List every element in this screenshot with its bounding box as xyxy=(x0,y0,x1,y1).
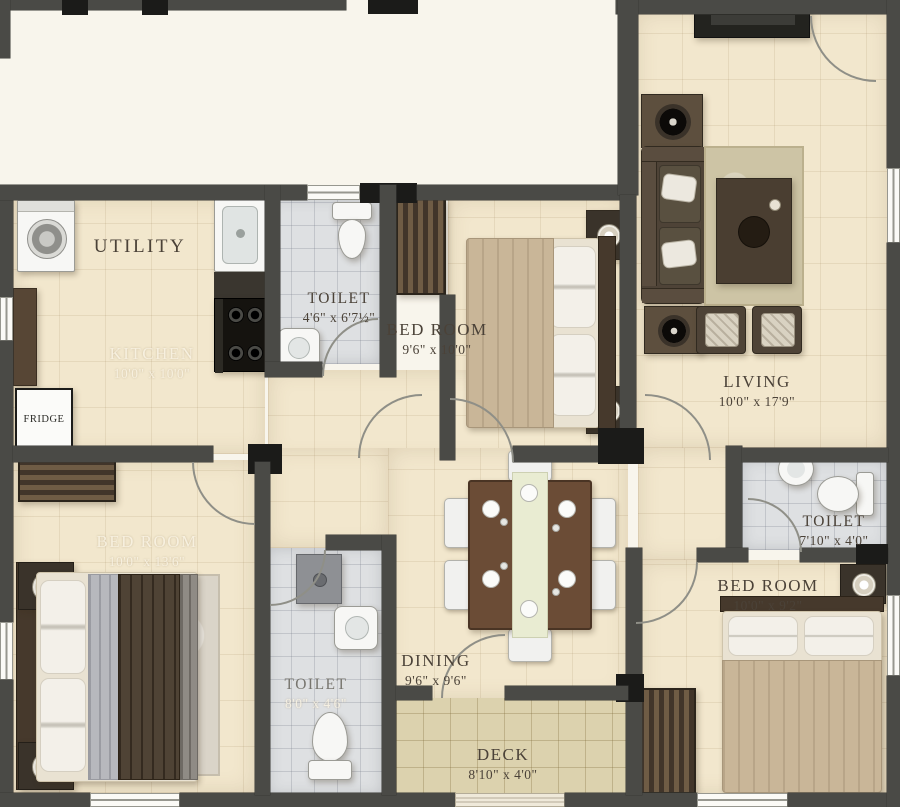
wall-pillar xyxy=(142,0,168,15)
bedroom-right-blanket xyxy=(722,660,882,793)
window xyxy=(887,595,900,676)
wall-left xyxy=(0,341,13,622)
bedroom-top-headboard xyxy=(598,236,616,430)
armchair-2 xyxy=(752,306,802,354)
dining-glass xyxy=(500,518,508,526)
sofa-throw-pillow-1 xyxy=(660,173,697,203)
sofa-armrest-top xyxy=(642,147,704,162)
washing-machine xyxy=(17,200,75,272)
deck-steps xyxy=(455,793,565,807)
wall-right xyxy=(887,676,900,807)
stove-knobs xyxy=(215,299,223,373)
toilet-bottom-basin-bowl xyxy=(345,616,369,640)
bedroom-right-pillow-2 xyxy=(804,616,874,656)
speaker-icon xyxy=(658,315,690,347)
window xyxy=(0,297,13,341)
coffee-table-candle xyxy=(769,199,781,211)
window xyxy=(887,168,900,243)
wall-utility-top xyxy=(0,185,307,200)
window xyxy=(307,185,360,200)
washing-machine-drum xyxy=(27,219,67,259)
toilet-bottom-wc-tank xyxy=(308,760,352,780)
toilet-bottom-label: TOILET 8'0" x 4'6" xyxy=(285,676,348,712)
sofa-backrest xyxy=(642,162,657,286)
sofa-throw-pillow-2 xyxy=(661,239,698,269)
toilet-right-wc-bowl xyxy=(817,476,859,512)
fridge-label: FRIDGE xyxy=(24,414,65,425)
bedroom-top-pillow-2 xyxy=(550,334,596,416)
dining-plate xyxy=(520,600,538,618)
coffee-table-decor xyxy=(739,217,769,247)
bedroom-left-wardrobe xyxy=(18,460,116,502)
armchair-1 xyxy=(696,306,746,354)
wall-living-left-upper xyxy=(618,0,638,195)
dining-plate xyxy=(482,500,500,518)
wall-toilet-bottom-right xyxy=(382,535,396,795)
floor-plan: FRIDGE xyxy=(0,0,900,807)
dining-plate xyxy=(520,484,538,502)
bedroom-left-blanket-edge xyxy=(180,574,198,780)
toilet-top-wc-tank xyxy=(332,202,372,220)
fridge: FRIDGE xyxy=(15,388,73,450)
burner-2 xyxy=(247,307,263,323)
bedroom-right-pillow-1 xyxy=(728,616,798,656)
utility-sink xyxy=(214,198,266,272)
dining-glass xyxy=(552,588,560,596)
wall-pillar xyxy=(368,0,418,14)
speaker-table-1 xyxy=(641,94,703,148)
burner-1 xyxy=(228,307,244,323)
toilet-bottom-basin xyxy=(334,606,378,650)
kitchen-tall-cabinet xyxy=(13,288,37,386)
window xyxy=(0,622,13,680)
wall-bottom xyxy=(180,793,455,807)
wall-bedroom-top-top xyxy=(417,185,624,200)
bedroom-left-blanket xyxy=(118,574,180,780)
wall-left xyxy=(0,680,13,807)
dining-glass xyxy=(552,524,560,532)
window xyxy=(90,793,180,807)
toilet-right-label: TOILET 7'10" x 4'0" xyxy=(799,513,868,549)
stove xyxy=(214,298,266,372)
tv-screen xyxy=(711,15,795,25)
wall-pillar xyxy=(598,428,644,464)
bedroom-left-pillow-1 xyxy=(40,580,86,674)
nightstand-lamp xyxy=(852,573,876,597)
washing-machine-panel xyxy=(18,201,74,212)
speaker-table-2 xyxy=(644,306,702,354)
dining-chair-right-1 xyxy=(588,498,616,548)
wall-right xyxy=(887,0,900,168)
wall-pillar xyxy=(62,0,88,15)
toilet-top-label: TOILET 4'6" x 6'7½" xyxy=(303,290,376,326)
living-label: LIVING 10'0" x 17'9" xyxy=(719,372,795,410)
wall-bedroom-left-right xyxy=(255,462,270,795)
wall-left xyxy=(0,185,13,297)
toilet-top-basin-bowl xyxy=(288,337,310,359)
bedroom-top-label: BED ROOM 9'6" x 10'0" xyxy=(386,320,487,358)
sofa-armrest-bottom xyxy=(642,288,704,303)
bedroom-top-pillow-1 xyxy=(550,246,596,328)
dining-plate xyxy=(482,570,500,588)
wall-deck-top-b xyxy=(505,686,628,700)
coffee-table xyxy=(716,178,792,284)
window xyxy=(697,793,788,807)
corridor-left-floor xyxy=(268,448,388,548)
wall-toilet-right-top xyxy=(742,448,888,462)
speaker-icon xyxy=(655,104,691,140)
wall-right xyxy=(887,243,900,595)
wall-bottom xyxy=(788,793,900,807)
dining-glass xyxy=(500,562,508,570)
wall-corridor-right xyxy=(726,446,742,560)
wall-top-left xyxy=(0,0,346,10)
utility-label: UTILITY xyxy=(94,236,186,258)
wall-living-left xyxy=(620,195,636,428)
bedroom-top-wardrobe xyxy=(396,198,446,295)
bedroom-left-sheet xyxy=(88,574,120,780)
bedroom-left-pillow-2 xyxy=(40,678,86,772)
sofa xyxy=(641,146,705,304)
deck-label: DECK 8'10" x 4'0" xyxy=(468,745,537,783)
wall-bottom xyxy=(0,793,90,807)
burner-3 xyxy=(228,345,244,361)
dining-plate xyxy=(558,570,576,588)
dining-label: DINING 9'6" x 9'6" xyxy=(401,651,470,689)
bedroom-right-label: BED ROOM 10'0" x 9'2" xyxy=(717,576,818,614)
wall-kitchen-toilet xyxy=(265,185,280,377)
wall-left-stub xyxy=(0,0,10,58)
wall-top-living xyxy=(616,0,900,14)
wall-bedroom-left-top xyxy=(13,446,213,462)
burner-4 xyxy=(247,345,263,361)
dining-plate xyxy=(558,500,576,518)
bedroom-left-label: BED ROOM 10'0" x 13'6" xyxy=(96,532,197,570)
armchair-seat xyxy=(705,313,739,347)
kitchen-counter-divider xyxy=(214,272,266,298)
toilet-right-basin-bowl xyxy=(787,460,805,478)
kitchen-label: KITCHEN 10'0" x 10'0" xyxy=(109,344,194,382)
utility-sink-drain xyxy=(236,229,245,238)
dining-chair-right-2 xyxy=(588,560,616,610)
armchair-seat xyxy=(761,313,795,347)
wall-toilet-top-bottom xyxy=(265,362,322,377)
wall-bottom xyxy=(565,793,697,807)
wall-toilet-right-bottom-a xyxy=(697,548,748,562)
